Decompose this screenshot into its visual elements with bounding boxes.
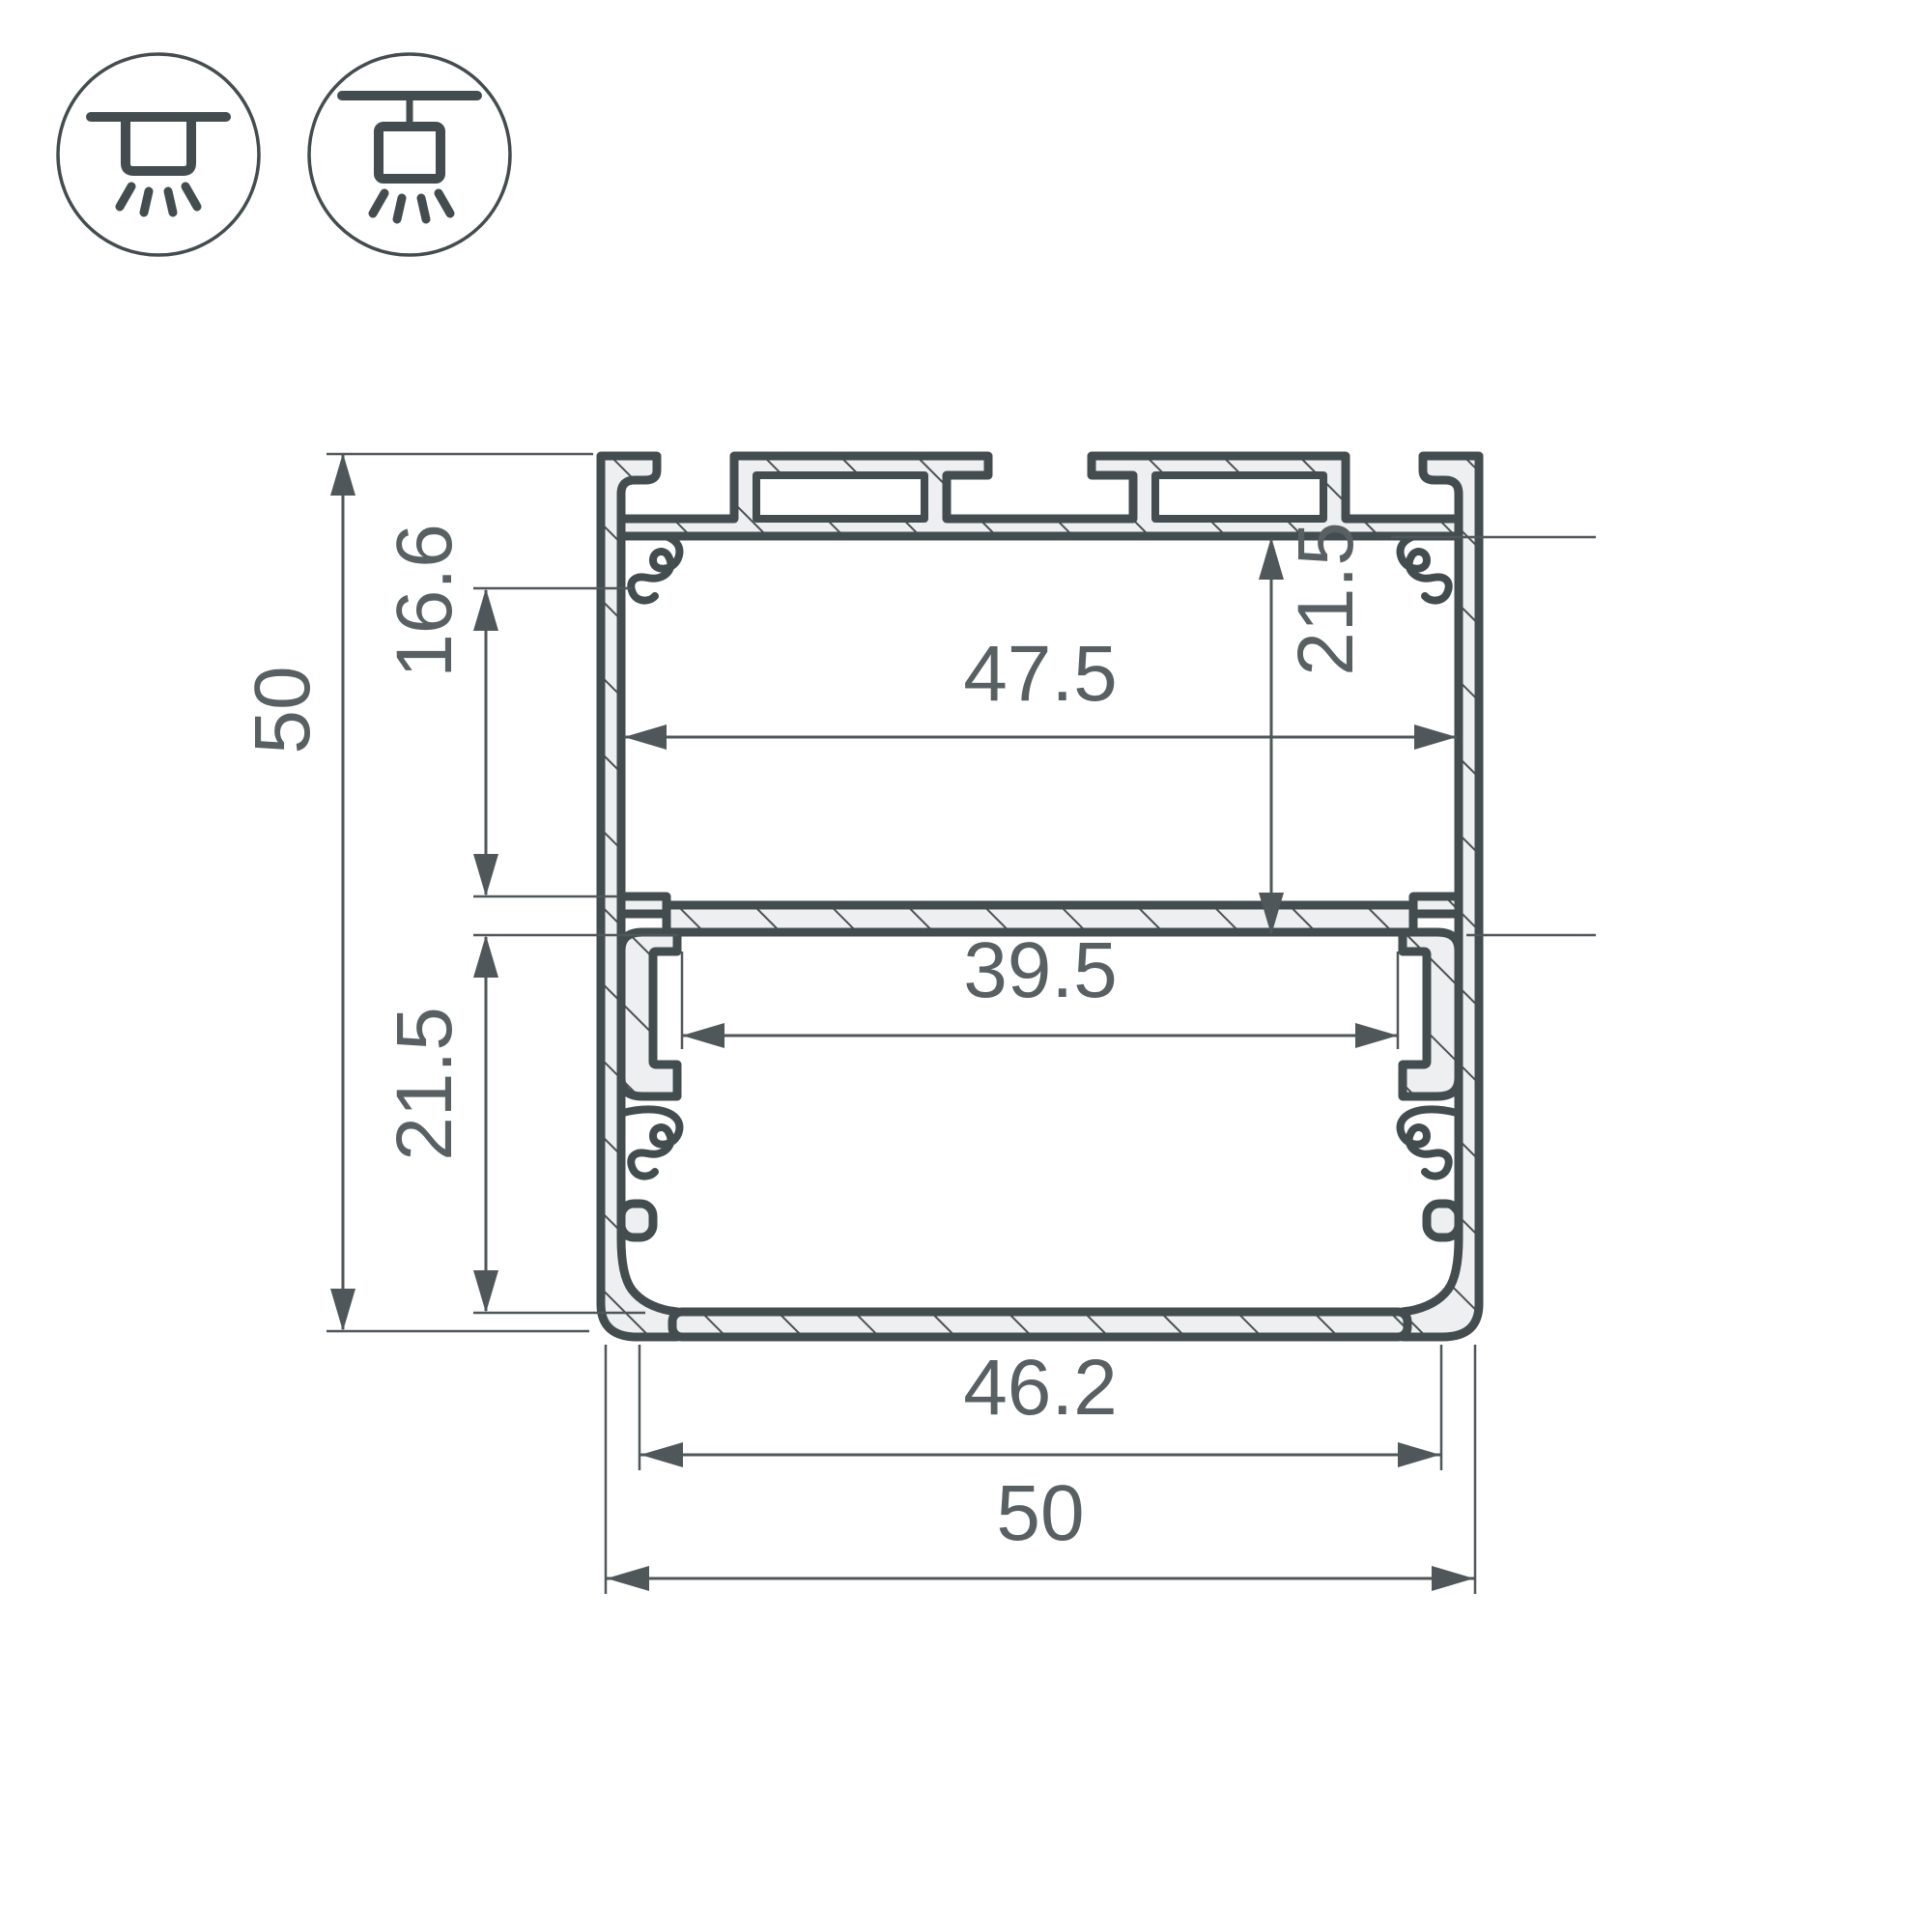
top-cavity-right [1155,475,1323,519]
dim-label-upper-chamber: 21.5 [1282,522,1370,676]
dim-label-clip-to-shelf: 16.6 [381,524,469,678]
dim-label-lower-chamber: 21.5 [381,1007,469,1161]
profile-right-wall [1401,456,1479,1337]
dim-clip-to-shelf: 16.6 [381,524,498,896]
dim-shelf-opening-width: 39.5 [682,926,1398,1048]
ceiling-surface-mount-icon [58,54,259,255]
light-rays-icon [373,193,450,219]
dim-label-overall-width: 50 [996,1469,1084,1557]
extension-lines [327,454,1596,1594]
dim-lower-chamber: 21.5 [381,935,498,1313]
light-rays-icon [120,186,197,213]
dim-label-top-inner-width: 47.5 [963,630,1118,718]
dim-label-overall-height: 50 [239,666,327,753]
ceiling-suspended-mount-icon [309,54,510,255]
dimension-annotations: 50 16.6 21.5 21.5 47.5 [239,453,1596,1594]
dim-bottom-inner-width: 46.2 [640,1344,1440,1467]
top-cavity-left [756,475,924,519]
dim-label-bottom-inner-width: 46.2 [963,1344,1118,1432]
dim-label-shelf-opening-width: 39.5 [963,926,1118,1014]
dim-overall-width: 50 [607,1469,1474,1591]
profile-drawing: 50 16.6 21.5 21.5 47.5 [0,0,1932,1932]
dim-upper-chamber: 21.5 [1259,522,1370,935]
dim-overall-height: 50 [239,453,355,1331]
bottom-slab [672,1312,1407,1337]
drawing-canvas: 50 16.6 21.5 21.5 47.5 [0,0,1932,1932]
